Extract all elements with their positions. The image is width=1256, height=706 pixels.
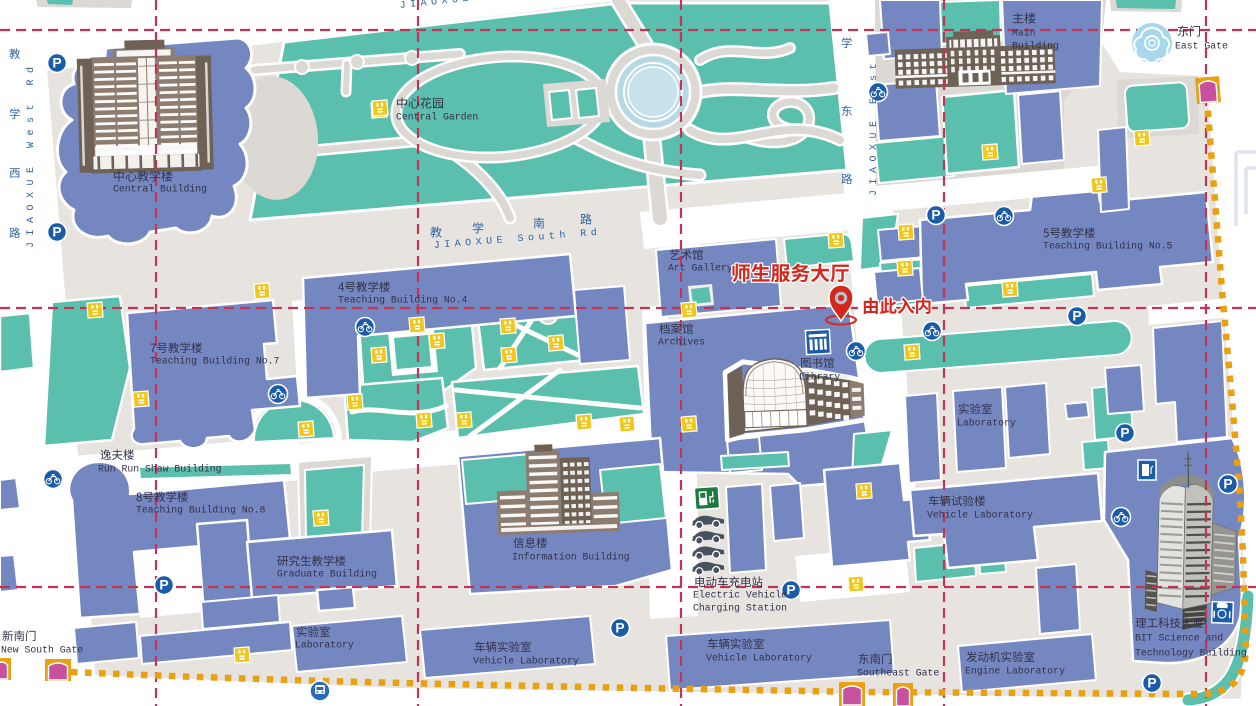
- svg-text:Art Gallery: Art Gallery: [668, 263, 733, 274]
- svg-text:P: P: [1120, 426, 1129, 441]
- svg-text:Technology Building: Technology Building: [1135, 648, 1247, 659]
- svg-text:P: P: [615, 621, 624, 636]
- svg-text:BIT Science and: BIT Science and: [1135, 633, 1223, 644]
- svg-text:Teaching Building No.8: Teaching Building No.8: [136, 505, 265, 516]
- svg-text:JIAOXUE West Rd: JIAOXUE West Rd: [25, 60, 37, 248]
- svg-text:Electric Vehicle: Electric Vehicle: [693, 590, 787, 601]
- svg-text:Teaching Building No.4: Teaching Building No.4: [338, 295, 467, 306]
- svg-text:Central Garden: Central Garden: [396, 112, 478, 123]
- svg-text:P: P: [159, 578, 168, 593]
- svg-text:Laboratory: Laboratory: [295, 640, 354, 651]
- svg-text:P: P: [52, 56, 61, 71]
- svg-text:Teaching Building No.5: Teaching Building No.5: [1043, 241, 1172, 252]
- svg-text:P: P: [52, 225, 61, 240]
- svg-text:Library: Library: [799, 372, 840, 383]
- svg-text:P: P: [931, 208, 940, 223]
- svg-text:Engine Laboratory: Engine Laboratory: [965, 666, 1065, 677]
- svg-text:Laboratory: Laboratory: [957, 418, 1016, 429]
- svg-text:Graduate Building: Graduate Building: [277, 569, 377, 580]
- svg-text:Vehicle Laboratory: Vehicle Laboratory: [706, 653, 812, 664]
- svg-text:Building: Building: [1012, 41, 1059, 52]
- svg-text:P: P: [1223, 477, 1232, 492]
- svg-text:Teaching Building No.7: Teaching Building No.7: [150, 356, 279, 367]
- svg-text:P: P: [786, 583, 795, 598]
- svg-text:P: P: [1072, 309, 1081, 324]
- svg-text:Central Building: Central Building: [113, 184, 207, 195]
- svg-text:P: P: [1147, 676, 1156, 691]
- svg-text:East Gate: East Gate: [1175, 41, 1228, 52]
- svg-text:Vehicle Laboratory: Vehicle Laboratory: [927, 510, 1033, 521]
- svg-text:Information Building: Information Building: [512, 552, 630, 563]
- svg-text:New South Gate: New South Gate: [1, 645, 83, 656]
- svg-text:Main: Main: [1012, 28, 1036, 39]
- svg-text:Run Run Shaw Building: Run Run Shaw Building: [98, 464, 222, 475]
- svg-text:JIAOXUE East: JIAOXUE East: [869, 58, 880, 196]
- svg-text:Vehicle Laboratory: Vehicle Laboratory: [473, 656, 579, 667]
- svg-text:Charging Station: Charging Station: [693, 603, 787, 614]
- svg-text:Southeast Gate: Southeast Gate: [857, 668, 939, 679]
- svg-text:Archives: Archives: [658, 337, 705, 348]
